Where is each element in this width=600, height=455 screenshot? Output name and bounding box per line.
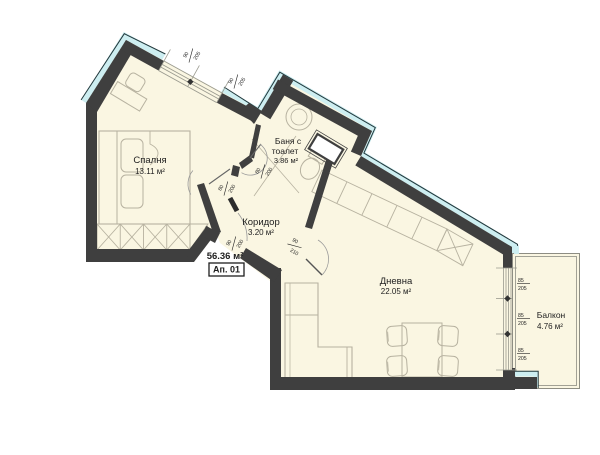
svg-text:тоалет: тоалет	[272, 146, 299, 156]
svg-text:22.05 м²: 22.05 м²	[381, 287, 412, 296]
svg-text:205: 205	[518, 286, 527, 292]
svg-text:56.36 м²: 56.36 м²	[207, 251, 244, 262]
svg-text:205: 205	[518, 321, 527, 327]
svg-text:85: 85	[518, 348, 524, 354]
svg-text:Баня с: Баня с	[275, 136, 302, 146]
svg-text:Балкон: Балкон	[537, 310, 566, 320]
svg-text:85: 85	[518, 313, 524, 319]
svg-text:3.20 м²: 3.20 м²	[248, 228, 274, 237]
svg-text:4.76 м²: 4.76 м²	[537, 322, 563, 331]
svg-text:Ап. 01: Ап. 01	[213, 265, 240, 275]
svg-text:Спалня: Спалня	[133, 155, 166, 166]
svg-text:Дневна: Дневна	[380, 276, 413, 287]
svg-text:85: 85	[518, 278, 524, 284]
svg-text:13.11 м²: 13.11 м²	[135, 167, 165, 176]
svg-text:Коридор: Коридор	[242, 217, 280, 228]
svg-text:205: 205	[518, 356, 527, 362]
svg-text:3.86 м²: 3.86 м²	[274, 156, 299, 165]
